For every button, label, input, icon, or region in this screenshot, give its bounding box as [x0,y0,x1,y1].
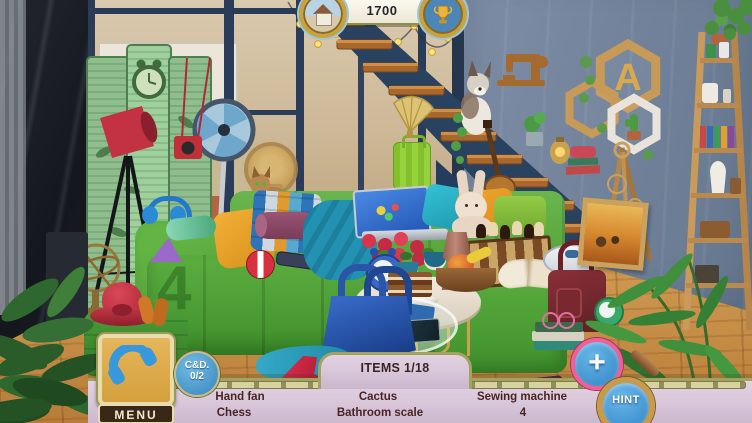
phone-handset-icon [107,345,159,389]
item-label-bathroom-scale: Bathroom scale [337,407,423,419]
front-leaves [0,330,110,423]
cd-badge-count: 0/2 [176,371,218,382]
item-label-4: 4 [520,407,526,419]
plus-glyph: + [588,346,606,379]
item-label-cactus: Cactus [359,391,397,403]
cd-badge[interactable]: C&D. 0/2 [174,351,220,397]
items-header: ITEMS 1/18 [361,361,430,375]
trophy-icon [431,3,455,27]
hint-label: HINT [612,394,640,406]
menu-label: MENU [114,408,157,422]
items-header-hump: ITEMS 1/18 [318,352,472,389]
item-label-chess: Chess [217,407,252,419]
item-label-sewing-machine: Sewing machine [477,391,567,403]
item-label-hand-fan: Hand fan [215,391,264,403]
cd-badge-title: C&D. [176,360,218,371]
score-value: 1700 [367,3,398,18]
game-screen: A [0,0,752,423]
